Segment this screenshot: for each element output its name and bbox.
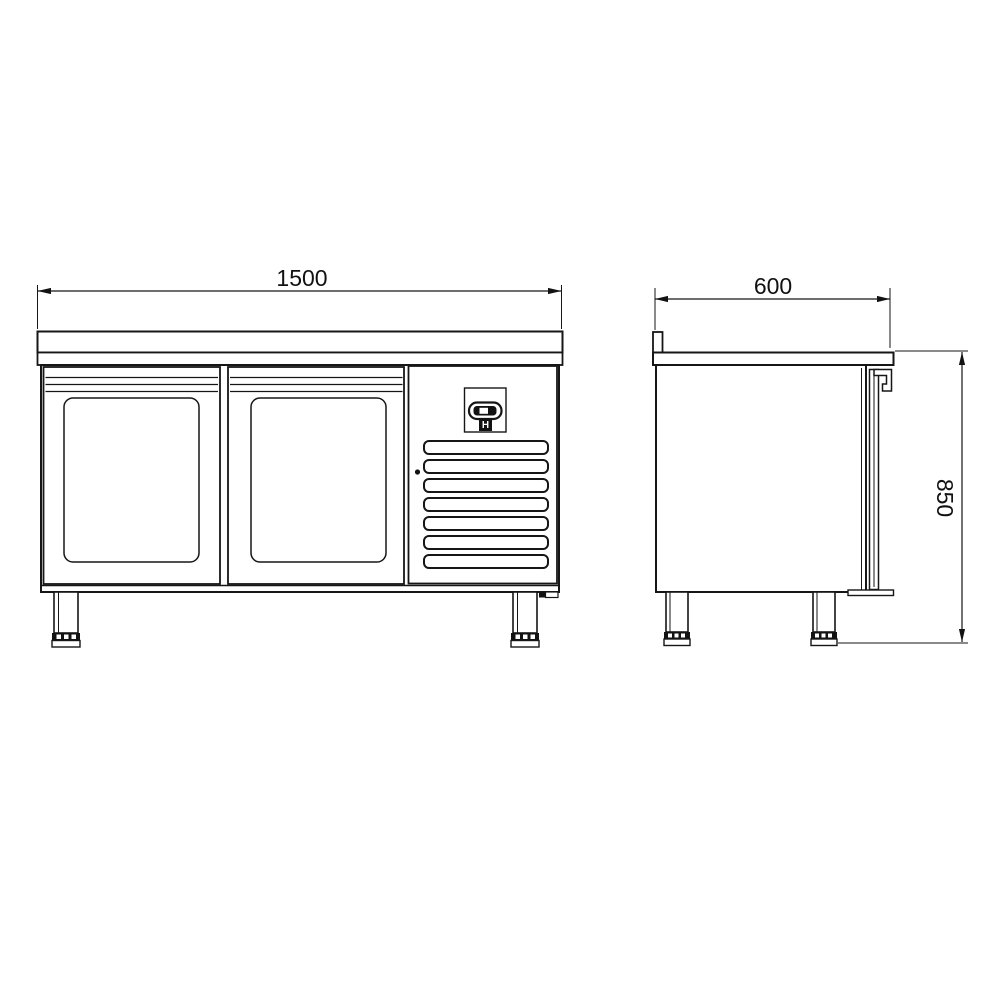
vent-slat xyxy=(424,460,548,473)
worktop-backsplash-band xyxy=(38,332,563,353)
leg xyxy=(666,592,688,632)
left-door-panel xyxy=(64,398,199,562)
arrowhead-down-icon xyxy=(959,629,965,642)
adjustable-foot-base xyxy=(511,641,539,648)
controller-plate: H xyxy=(465,388,507,432)
right-door-panel xyxy=(251,398,386,562)
side-cabinet-body xyxy=(656,365,866,592)
vent-slat xyxy=(424,536,548,549)
arrowhead-left-icon xyxy=(38,288,52,294)
adjustable-foot-base xyxy=(52,641,80,648)
base-bracket xyxy=(539,592,558,598)
vent-slat xyxy=(424,441,548,454)
side-view: 600 xyxy=(653,273,968,646)
leg xyxy=(54,592,78,633)
front-right-leg xyxy=(511,592,539,647)
vent-slat xyxy=(424,479,548,492)
left-door xyxy=(44,367,221,584)
vent-slat xyxy=(424,517,548,530)
controller-display-digit xyxy=(480,408,489,414)
side-rear-leg xyxy=(664,592,690,646)
side-depth-dimension-label: 600 xyxy=(754,273,792,299)
side-height-dimension-label: 850 xyxy=(932,479,958,517)
right-door xyxy=(228,367,404,584)
technical-drawing-canvas: 1500 xyxy=(0,0,1000,1000)
adjustable-foot-base xyxy=(664,639,690,646)
front-width-dimension-label: 1500 xyxy=(276,265,327,291)
bracket-plate xyxy=(546,592,559,598)
worktop-edge-band xyxy=(38,353,563,366)
front-left-leg xyxy=(52,592,80,647)
side-worktop xyxy=(653,353,894,366)
vent-slat xyxy=(424,498,548,511)
keyhole-icon xyxy=(415,469,420,474)
side-front-leg xyxy=(811,592,837,646)
leg xyxy=(813,592,835,632)
arrowhead-right-icon xyxy=(548,288,562,294)
controller-label: H xyxy=(482,420,489,431)
technical-drawing-page: 1500 xyxy=(0,0,1000,1000)
ventilation-grille xyxy=(424,441,548,568)
leg xyxy=(513,592,537,633)
arrowhead-left-icon xyxy=(655,296,668,302)
worktop xyxy=(38,332,563,366)
front-view: 1500 xyxy=(38,265,563,647)
side-backsplash xyxy=(653,332,663,353)
arrowhead-up-icon xyxy=(959,352,965,365)
arrowhead-right-icon xyxy=(877,296,890,302)
bracket-block xyxy=(539,592,546,598)
adjustable-foot-base xyxy=(811,639,837,646)
machine-compartment: H xyxy=(409,366,558,584)
front-width-dimension: 1500 xyxy=(38,265,562,329)
door-bottom-flange xyxy=(848,590,894,596)
side-body xyxy=(656,365,866,592)
vent-slat xyxy=(424,555,548,568)
side-depth-dimension: 600 xyxy=(655,273,890,348)
